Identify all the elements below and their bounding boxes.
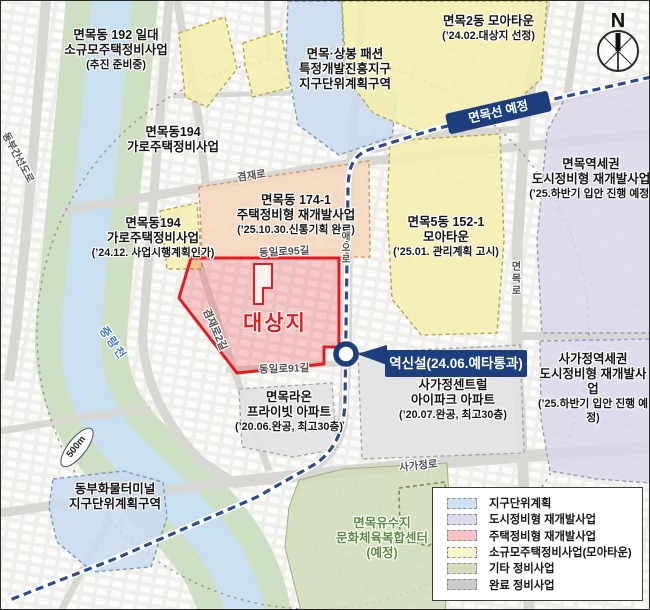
label-zone-moa2: 면목2동 모아타운 (’24.02.대상지 선정) [406,14,571,43]
label-terminal: 동부화물터미널 지구단위계획구역 [41,482,189,512]
label-zone-192: 면목동 192 일대 소규모주택정비사업 (추진 준비중) [36,28,196,72]
label-line: 면목동 192 일대 [36,28,196,43]
label-zone-174-1: 면목동 174-1 주택정비형 재개발사업 (’25.10.30.신통기획 완료… [216,193,376,237]
label-zone-moa5: 면목5동 152-1 모아타운 (’25.01. 관리계획 고시) [386,215,506,259]
legend-swatch-pink [447,530,477,541]
label-zone-194-left: 면목동194 가로주택정비사업 (’24.12. 사업시행계획인가) [86,216,220,260]
legend-item-other: 기타 정비사업 [447,560,636,576]
legend-swatch-yellow [447,547,477,558]
new-station-callout: 역신설(24.06.예타통과) [385,350,527,377]
label-zone-sagajeong-station: 사가정역세권 도시정비형 재개발사업 (’25.하반기 입안 진행 예정) [534,352,650,425]
label-zone-myeonmok-station: 면목역세권 도시정비형 재개발사업 (’25.하반기 입안 진행 예정) [529,157,650,201]
legend-swatch-purple [447,514,477,525]
label-road-dongil91: 동일로91길 [259,360,310,377]
legend-item-completed: 완료 정비사업 [447,577,636,593]
label-zone-fashion: 면목·상봉 패션 특정개발진흥지구 지구단위계획구역 [284,47,406,92]
label-road-aeo: 애오로 [337,231,351,266]
label-yusuji-center: 면목유수지 문화체육복합센터 (예정) [323,516,441,561]
compass-needle-north [616,33,621,51]
label-ipark-apartment: 사가정센트럴 아이파크 아파트 (’20.07.완공, 최고30층) [386,378,520,422]
label-road-dongil95: 동일로95길 [259,243,310,261]
label-line: (추진 준비중) [36,58,196,72]
label-raon-apartment: 면목라온 프라이빗 아파트 (’20.06.완공, 최고30층) [228,390,350,434]
new-station-marker [336,344,356,364]
redevelopment-map: N 면목동 192 일대 소규모주택정비사업 (추진 준비중) 면목·상봉 패션… [0,0,650,610]
label-zone-194-top: 면목동194 가로주택정비사업 [113,125,233,155]
legend-swatch-blue [447,498,477,509]
label-line: 소규모주택정비사업 [36,43,196,58]
legend-item-small-housing: 소규모주택정비사업(모아타운) [447,544,636,560]
compass-n-label: N [611,10,625,32]
legend-item-housing-redev: 주택정비형 재개발사업 [447,528,636,544]
legend: 지구단위계획 도시정비형 재개발사업 주택정비형 재개발사업 소규모주택정비사업… [432,487,643,601]
legend-item-urban-redev: 도시정비형 재개발사업 [447,511,636,527]
legend-swatch-green [447,563,477,574]
legend-item-district-plan: 지구단위계획 [447,495,636,511]
label-road-myeonmok: 면목로 [507,261,522,297]
legend-swatch-gray [447,579,477,590]
label-target-site: 대상지 [243,307,307,337]
